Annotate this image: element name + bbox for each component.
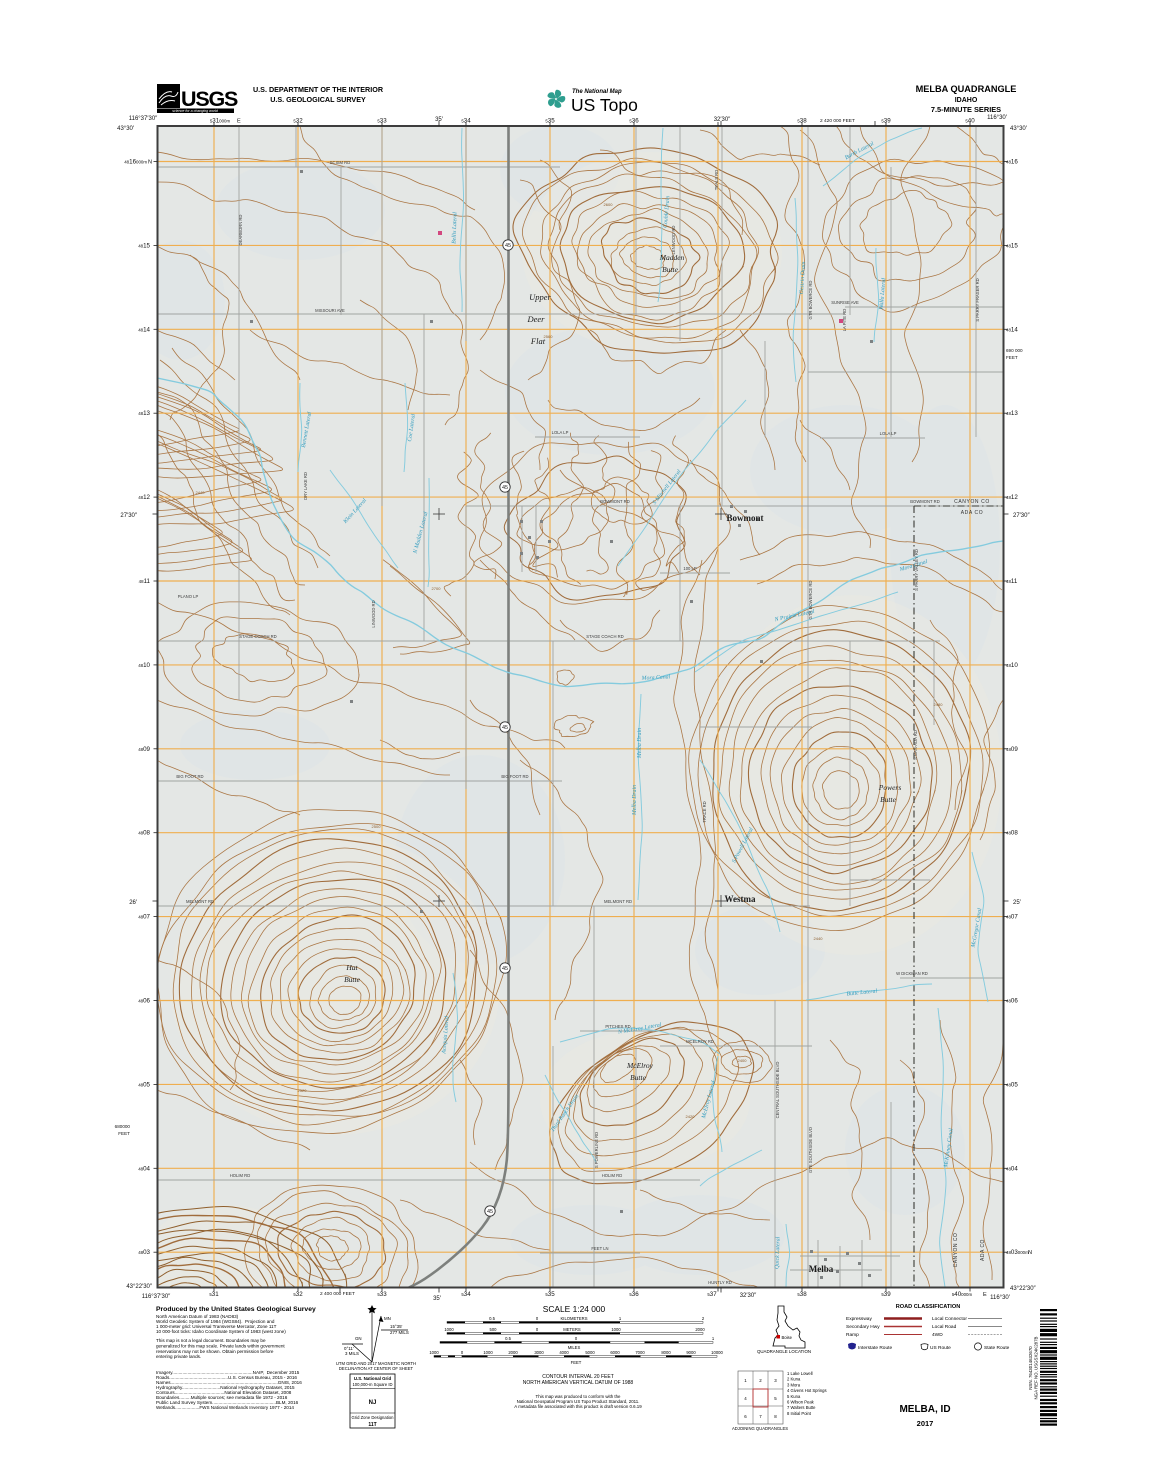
svg-text:LOLA LP: LOLA LP: [552, 430, 569, 435]
svg-text:BIG FOOT RD: BIG FOOT RD: [176, 774, 203, 779]
svg-text:4815: 4815: [1006, 242, 1018, 249]
svg-text:536: 536: [629, 1291, 639, 1298]
svg-text:MILES: MILES: [568, 1345, 581, 1350]
svg-text:MN: MN: [384, 1316, 391, 1321]
svg-text:SUNRISE AVE: SUNRISE AVE: [831, 300, 859, 305]
svg-text:4806: 4806: [1006, 998, 1018, 1005]
svg-text:4803: 4803: [138, 1249, 150, 1256]
svg-text:2: 2: [702, 1316, 705, 1321]
svg-text:43°30′: 43°30′: [1010, 126, 1028, 132]
svg-text:4810: 4810: [138, 662, 150, 669]
svg-text:MELMONT RD: MELMONT RD: [604, 899, 632, 904]
svg-text:GTE SOUTHSIDE BLVD: GTE SOUTHSIDE BLVD: [808, 1127, 813, 1173]
svg-text:LA PITE RD: LA PITE RD: [842, 309, 847, 332]
svg-text:DECLINATION AT CENTER OF SHEET: DECLINATION AT CENTER OF SHEET: [339, 1366, 414, 1371]
svg-text:1000: 1000: [483, 1350, 493, 1355]
svg-text:Local Road: Local Road: [932, 1324, 957, 1330]
svg-text:4815: 4815: [138, 242, 150, 249]
svg-text:2000: 2000: [695, 1327, 705, 1332]
svg-text:Powers: Powers: [878, 783, 902, 792]
svg-text:MISSOURI AVE: MISSOURI AVE: [315, 308, 345, 313]
svg-text:BIG FOOT RD: BIG FOOT RD: [501, 774, 528, 779]
svg-text:4808: 4808: [138, 830, 150, 837]
svg-text:FEET: FEET: [118, 1131, 130, 1136]
svg-text:540000m: 540000m: [952, 1291, 973, 1298]
svg-text:STAGE COACH RD: STAGE COACH RD: [586, 634, 623, 639]
svg-text:35′: 35′: [433, 1296, 442, 1302]
svg-text:4 Givens Hot Springs: 4 Givens Hot Springs: [787, 1388, 827, 1393]
svg-text:reservations may not be shown.: reservations may not be shown. Obtain pe…: [156, 1349, 274, 1354]
svg-text:U.S. GEOLOGICAL SURVEY: U.S. GEOLOGICAL SURVEY: [270, 95, 366, 104]
svg-text:Upper: Upper: [529, 292, 551, 302]
svg-text:116°37′30″: 116°37′30″: [142, 1294, 171, 1300]
svg-text:3 Mora: 3 Mora: [787, 1382, 801, 1387]
svg-text:entering private lands.: entering private lands.: [156, 1354, 201, 1359]
svg-text:4814: 4814: [138, 326, 150, 333]
svg-text:S PARRY FRASER RD: S PARRY FRASER RD: [975, 278, 980, 321]
svg-text:538: 538: [797, 118, 807, 125]
svg-text:4808: 4808: [1006, 830, 1018, 837]
svg-text:533: 533: [377, 1291, 387, 1298]
svg-text:7000: 7000: [635, 1350, 645, 1355]
svg-text:State Route: State Route: [984, 1345, 1010, 1351]
svg-text:531: 531: [209, 1291, 219, 1298]
svg-text:LENWOOD RD: LENWOOD RD: [671, 226, 676, 255]
svg-text:S POWERLINE RD: S POWERLINE RD: [594, 1132, 599, 1168]
svg-text:1: 1: [619, 1316, 622, 1321]
svg-text:2560: 2560: [544, 334, 554, 339]
svg-text:MCELROY RD: MCELROY RD: [686, 1039, 714, 1044]
svg-text:Melba Drain: Melba Drain: [637, 728, 643, 759]
svg-text:Ramp: Ramp: [846, 1332, 859, 1338]
svg-text:NSN. 7643014632670: NSN. 7643014632670: [1028, 1346, 1033, 1390]
svg-text:116°30′: 116°30′: [990, 1295, 1011, 1301]
svg-text:534: 534: [461, 118, 471, 125]
svg-text:Local Connector: Local Connector: [932, 1316, 967, 1322]
svg-text:NJ: NJ: [369, 1400, 377, 1406]
svg-text:4809: 4809: [138, 746, 150, 753]
svg-text:2 420 000 FEET: 2 420 000 FEET: [820, 118, 855, 124]
svg-text:45: 45: [502, 485, 508, 491]
svg-text:W DICKMAN RD: W DICKMAN RD: [896, 971, 928, 976]
svg-text:generalized for this map scale: generalized for this map scale. Private …: [156, 1343, 285, 1348]
svg-text:CANYON CO: CANYON CO: [953, 1233, 959, 1268]
svg-text:S PARRY VALLEY RD: S PARRY VALLEY RD: [914, 549, 919, 591]
svg-text:4811: 4811: [139, 578, 151, 585]
svg-text:4816000m: 4816000m: [124, 159, 147, 166]
svg-text:7.5-MINUTE SERIES: 7.5-MINUTE SERIES: [931, 105, 1001, 114]
svg-text:116°37′30″: 116°37′30″: [129, 116, 158, 122]
svg-text:8: 8: [774, 1414, 777, 1419]
svg-text:45: 45: [505, 243, 511, 249]
svg-text:CANYON CO: CANYON CO: [954, 499, 990, 505]
svg-text:4805: 4805: [138, 1081, 150, 1088]
svg-text:4816: 4816: [1006, 159, 1018, 166]
svg-text:5 Kuna: 5 Kuna: [787, 1394, 801, 1399]
svg-text:FEET: FEET: [571, 1360, 582, 1365]
svg-text:32′30″: 32′30″: [714, 117, 731, 123]
svg-text:METERS: METERS: [563, 1327, 581, 1332]
svg-text:540: 540: [965, 118, 975, 125]
svg-text:4: 4: [744, 1396, 747, 1401]
svg-text:0: 0: [575, 1336, 578, 1341]
svg-text:US Topo: US Topo: [571, 95, 638, 115]
svg-text:25′: 25′: [1013, 900, 1022, 906]
svg-text:9000: 9000: [686, 1350, 696, 1355]
svg-text:537: 537: [707, 1291, 717, 1298]
svg-text:science for a changing world: science for a changing world: [172, 109, 219, 113]
svg-text:4809: 4809: [1006, 746, 1018, 753]
svg-text:680000: 680000: [115, 1124, 131, 1129]
svg-text:8000: 8000: [661, 1350, 671, 1355]
svg-text:Boise: Boise: [782, 1335, 793, 1340]
svg-text:6: 6: [744, 1414, 747, 1419]
svg-text:27′30″: 27′30″: [1013, 513, 1030, 519]
svg-text:U.S. DEPARTMENT OF THE INTERIO: U.S. DEPARTMENT OF THE INTERIOR: [253, 85, 384, 94]
svg-text:2500: 2500: [372, 824, 382, 829]
svg-text:ADA CO: ADA CO: [980, 1239, 986, 1261]
svg-text:539: 539: [881, 1291, 891, 1298]
svg-text:A metadata file associated wit: A metadata file associated with this pro…: [514, 1404, 642, 1409]
svg-text:KILOMETERS: KILOMETERS: [561, 1316, 588, 1321]
svg-text:4805: 4805: [1006, 1081, 1018, 1088]
svg-text:4811: 4811: [1006, 578, 1018, 585]
svg-text:LINWOOD RD: LINWOOD RD: [371, 600, 376, 627]
svg-text:35′: 35′: [435, 117, 444, 123]
svg-text:536: 536: [629, 118, 639, 125]
svg-text:0.5: 0.5: [489, 1316, 495, 1321]
svg-text:ADJOINING QUADRANGLES: ADJOINING QUADRANGLES: [732, 1426, 788, 1431]
svg-text:MELBA QUADRANGLE: MELBA QUADRANGLE: [916, 84, 1017, 94]
svg-text:Hat: Hat: [345, 963, 358, 972]
svg-text:US Route: US Route: [930, 1345, 951, 1351]
svg-text:531000m: 531000m: [210, 118, 231, 125]
svg-text:Quick Lateral: Quick Lateral: [774, 1236, 781, 1269]
svg-text:32′30″: 32′30″: [740, 1293, 757, 1299]
svg-text:116°30′: 116°30′: [987, 115, 1008, 121]
svg-text:GN: GN: [355, 1336, 362, 1341]
svg-text:Interstate Route: Interstate Route: [858, 1345, 892, 1351]
svg-text:Butte: Butte: [662, 265, 678, 274]
svg-text:Melba: Melba: [809, 1264, 834, 1274]
svg-text:LOLA LP: LOLA LP: [880, 431, 897, 436]
svg-text:100 LP: 100 LP: [683, 566, 696, 571]
svg-text:Grid Zone Designation: Grid Zone Designation: [352, 1415, 395, 1420]
svg-text:2440: 2440: [196, 490, 206, 495]
svg-text:HUNTLY RD: HUNTLY RD: [708, 1280, 732, 1285]
svg-text:45: 45: [487, 1209, 493, 1215]
svg-text:535: 535: [545, 118, 555, 125]
svg-text:15°35′: 15°35′: [390, 1324, 403, 1329]
svg-text:E: E: [237, 119, 241, 125]
svg-text:1000: 1000: [444, 1327, 454, 1332]
svg-text:Wetlands...................FWS: Wetlands...................FWS National …: [156, 1405, 294, 1410]
svg-text:HOLIM RD: HOLIM RD: [602, 1173, 622, 1178]
svg-text:2000: 2000: [508, 1350, 518, 1355]
svg-text:N: N: [148, 160, 152, 166]
svg-text:ROAD CLASSIFICATION: ROAD CLASSIFICATION: [896, 1304, 961, 1310]
svg-text:26′: 26′: [129, 900, 138, 906]
svg-text:4807: 4807: [1006, 914, 1018, 921]
svg-text:BOWMONT RD: BOWMONT RD: [600, 499, 629, 504]
svg-text:ADA CO: ADA CO: [961, 510, 984, 516]
svg-text:Bellis Lateral: Bellis Lateral: [451, 212, 458, 244]
svg-text:2440: 2440: [814, 936, 824, 941]
svg-text:PLANO LP: PLANO LP: [178, 594, 199, 599]
svg-text:690 000: 690 000: [1006, 348, 1023, 353]
svg-text:532: 532: [293, 118, 303, 125]
svg-text:4810: 4810: [1006, 662, 1018, 669]
svg-text:4813: 4813: [138, 410, 150, 417]
svg-text:5: 5: [774, 1396, 777, 1401]
svg-text:NGA REF NO. USGSX24K287B: NGA REF NO. USGSX24K287B: [1034, 1336, 1039, 1399]
svg-text:43°30′: 43°30′: [117, 126, 135, 132]
svg-text:TEALS RD: TEALS RD: [714, 170, 719, 190]
svg-text:USGS: USGS: [181, 87, 238, 111]
svg-text:8 Initial Point: 8 Initial Point: [787, 1411, 812, 1416]
svg-text:MELMONT RD: MELMONT RD: [186, 899, 214, 904]
svg-text:3 MILS: 3 MILS: [345, 1351, 359, 1356]
svg-text:SCISM RD: SCISM RD: [330, 160, 350, 165]
svg-text:FEET LN: FEET LN: [591, 1246, 608, 1251]
svg-text:2017: 2017: [917, 1419, 934, 1428]
svg-text:TRACE RD: TRACE RD: [702, 801, 707, 822]
svg-text:535: 535: [545, 1291, 555, 1298]
svg-text:4804: 4804: [138, 1165, 150, 1172]
svg-text:4812: 4812: [1006, 494, 1018, 501]
svg-text:4806: 4806: [138, 998, 150, 1005]
svg-text:100,000-m Square ID: 100,000-m Square ID: [352, 1382, 392, 1387]
svg-text:Bowmont: Bowmont: [726, 513, 763, 523]
svg-text:Westma: Westma: [725, 894, 756, 904]
svg-text:10 000-foot ticks: Idaho Coord: 10 000-foot ticks: Idaho Coordinate Syst…: [156, 1329, 286, 1334]
svg-text:HOLIM RD: HOLIM RD: [230, 1173, 250, 1178]
svg-text:2520: 2520: [298, 1088, 308, 1093]
svg-text:4814: 4814: [1006, 326, 1018, 333]
svg-text:3000: 3000: [534, 1350, 544, 1355]
svg-text:0: 0: [536, 1327, 539, 1332]
svg-text:QUADRANGLE LOCATION: QUADRANGLE LOCATION: [757, 1349, 811, 1354]
svg-text:4812: 4812: [138, 494, 150, 501]
svg-text:Butte: Butte: [630, 1073, 646, 1082]
svg-text:1 Lake Lowell: 1 Lake Lowell: [787, 1371, 813, 1376]
svg-text:500: 500: [490, 1327, 498, 1332]
svg-text:Expressway: Expressway: [846, 1316, 872, 1322]
svg-text:4000: 4000: [559, 1350, 569, 1355]
svg-text:2 Kuna: 2 Kuna: [787, 1377, 801, 1382]
svg-text:10000: 10000: [711, 1350, 723, 1355]
svg-text:IDAHO: IDAHO: [955, 97, 978, 104]
svg-text:2480: 2480: [934, 702, 944, 707]
svg-text:Melba Drain: Melba Drain: [632, 785, 638, 816]
svg-text:6 Wilson Peak: 6 Wilson Peak: [787, 1400, 815, 1405]
svg-text:0: 0: [536, 1316, 539, 1321]
svg-text:532: 532: [293, 1291, 303, 1298]
svg-text:Butte: Butte: [880, 795, 896, 804]
svg-text:7: 7: [759, 1414, 762, 1419]
svg-text:Produced by the United States: Produced by the United States Geological…: [156, 1306, 316, 1313]
svg-text:STAGE COACH RD: STAGE COACH RD: [239, 634, 276, 639]
svg-text:0: 0: [461, 1350, 464, 1355]
svg-text:11T: 11T: [368, 1422, 376, 1428]
svg-text:3: 3: [774, 1378, 777, 1383]
svg-text:2: 2: [759, 1378, 762, 1383]
svg-text:MELBA, ID: MELBA, ID: [899, 1404, 950, 1415]
svg-text:S CAN-ADA RD: S CAN-ADA RD: [913, 730, 918, 760]
svg-text:N: N: [1028, 1250, 1032, 1256]
svg-text:1: 1: [712, 1336, 715, 1341]
svg-text:4804: 4804: [1006, 1165, 1018, 1172]
svg-text:1000: 1000: [429, 1350, 439, 1355]
svg-text:CENTRAL SOUTHSIDE BLVD: CENTRAL SOUTHSIDE BLVD: [775, 1062, 780, 1119]
svg-text:539: 539: [881, 118, 891, 125]
svg-text:4803000m: 4803000m: [1006, 1249, 1029, 1256]
svg-text:U.S. National Grid: U.S. National Grid: [354, 1376, 392, 1381]
svg-text:SCALE 1:24 000: SCALE 1:24 000: [543, 1304, 606, 1314]
svg-text:Butte: Butte: [344, 975, 360, 984]
svg-text:534: 534: [461, 1291, 471, 1298]
svg-text:BOWMONT RD: BOWMONT RD: [910, 499, 939, 504]
svg-text:0.5: 0.5: [505, 1336, 511, 1341]
svg-text:1: 1: [744, 1378, 747, 1383]
svg-text:4807: 4807: [138, 914, 150, 921]
svg-text:This map is not a legal docume: This map is not a legal document. Bounda…: [156, 1338, 266, 1343]
svg-text:2400: 2400: [738, 1058, 748, 1063]
svg-text:1000: 1000: [611, 1327, 621, 1332]
svg-text:4813: 4813: [1006, 410, 1018, 417]
svg-text:6000: 6000: [610, 1350, 620, 1355]
svg-text:Deer: Deer: [527, 314, 546, 324]
svg-text:538: 538: [797, 1291, 807, 1298]
svg-text:2420: 2420: [686, 1114, 696, 1119]
svg-text:2 400 000 FEET: 2 400 000 FEET: [320, 1291, 355, 1297]
svg-text:533: 533: [377, 118, 387, 125]
svg-text:NORTH AMERICAN VERTICAL DATUM: NORTH AMERICAN VERTICAL DATUM OF 1988: [523, 1380, 634, 1386]
svg-text:2700: 2700: [432, 586, 442, 591]
svg-text:43°22′30″: 43°22′30″: [1010, 1286, 1037, 1292]
svg-text:277 MILS: 277 MILS: [390, 1330, 409, 1335]
svg-text:27′30″: 27′30″: [120, 513, 137, 519]
svg-text:DRY LAKE RD: DRY LAKE RD: [303, 472, 308, 500]
svg-text:4WD: 4WD: [932, 1332, 943, 1338]
svg-text:McElroy: McElroy: [626, 1061, 654, 1070]
svg-text:45: 45: [502, 966, 508, 972]
svg-text:2600: 2600: [604, 202, 614, 207]
svg-text:DEARBORN RD: DEARBORN RD: [238, 215, 243, 246]
svg-text:43°22′30″: 43°22′30″: [126, 1284, 153, 1290]
svg-text:5000: 5000: [585, 1350, 595, 1355]
svg-text:45: 45: [502, 725, 508, 731]
svg-text:E: E: [983, 1292, 987, 1298]
svg-text:7 Walters Butte: 7 Walters Butte: [787, 1405, 816, 1410]
svg-text:Secondary Hwy: Secondary Hwy: [846, 1324, 880, 1330]
svg-text:GTR BOWERCE RD: GTR BOWERCE RD: [808, 281, 813, 320]
svg-text:FEET: FEET: [1006, 355, 1018, 360]
